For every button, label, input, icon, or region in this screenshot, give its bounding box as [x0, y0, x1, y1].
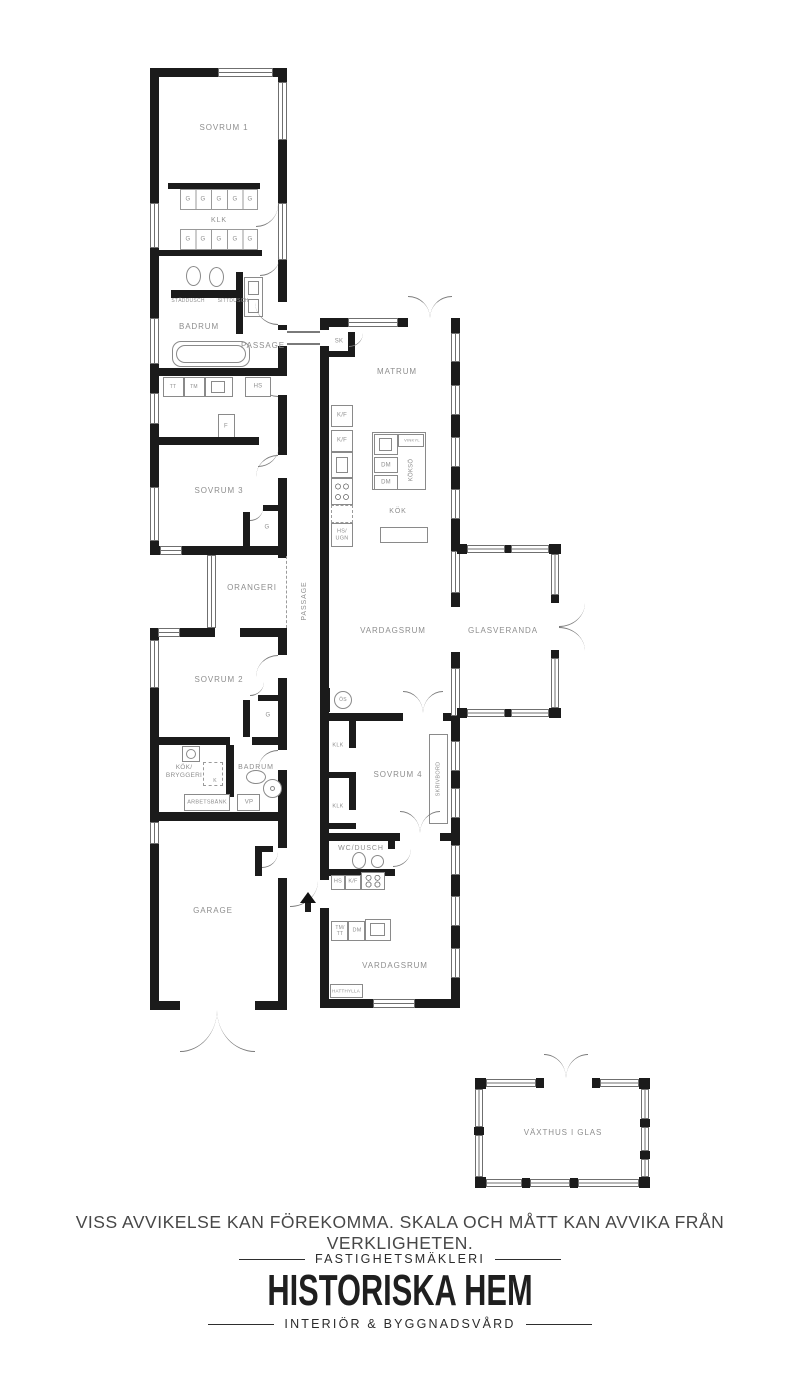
wall-segment: [451, 362, 460, 385]
window: [278, 203, 287, 260]
fixture-label-sittdusch: SITTDUSCH: [218, 298, 249, 304]
wardrobe-label-g: G: [233, 196, 238, 203]
wardrobe-label-g: G: [233, 236, 238, 243]
wall-segment: [278, 325, 287, 330]
wall-segment: [278, 260, 287, 302]
window: [451, 896, 460, 926]
door-arc: [250, 682, 264, 696]
door-arc: [423, 691, 443, 713]
toilet-icon: [352, 852, 366, 869]
window: [451, 788, 460, 818]
window: [511, 545, 549, 553]
door-arc: [255, 302, 278, 325]
greenhouse-door-arc: [566, 1054, 588, 1078]
fixture-label-kf-2: K/F: [337, 437, 347, 444]
wall-segment: [451, 818, 460, 845]
room-label-kok-bryggeri: KÖK/ BRYGGERI: [166, 764, 202, 780]
brand-tagline-bottom-text: INTERIÖR & BYGGNADSVÅRD: [284, 1317, 515, 1331]
post: [474, 1127, 484, 1135]
fixture-label-os: ÖS: [339, 697, 347, 703]
wall-segment: [329, 713, 403, 721]
wall-segment: [171, 290, 243, 298]
door-arc: [349, 333, 363, 347]
window: [348, 318, 398, 327]
wall-segment: [320, 318, 329, 330]
wall-segment: [451, 771, 460, 788]
window: [600, 1079, 639, 1087]
window: [451, 333, 460, 362]
fixture-label-kf-3: K/F: [348, 879, 357, 886]
post: [592, 1078, 600, 1088]
sink-bowl-icon: [379, 438, 392, 451]
window: [486, 1079, 536, 1087]
fixture-label-hs-ugn: HS/ UGN: [336, 528, 349, 541]
wall-segment: [443, 713, 451, 721]
door-arc: [256, 205, 278, 227]
wall-segment: [159, 368, 287, 376]
wall-segment: [451, 415, 460, 437]
post: [457, 544, 467, 554]
fixture-label-hs-2: HS: [334, 879, 342, 886]
window: [641, 1089, 649, 1119]
stove-burners-icon: [361, 872, 385, 890]
wall-segment: [329, 823, 356, 829]
fixture-label-arbetsbank: ARBETSBÄNK: [187, 800, 226, 807]
post: [551, 595, 559, 603]
room-label-klk: KLK: [211, 217, 227, 225]
brand-tagline-top-text: FASTIGHETSMÄKLERI: [315, 1252, 485, 1266]
wall-segment: [320, 346, 329, 545]
wall-segment: [451, 318, 460, 333]
stove-burners-icon: [331, 478, 353, 505]
floor-plan: SOVRUM 1GGGGGKLKGGGGGSTÄDDUSCHSITTDUSCHB…: [0, 0, 800, 1160]
wall-segment: [278, 395, 287, 455]
room-label-matrum: MATRUM: [377, 367, 417, 377]
fixture-label-vinkyl: VINKYL: [404, 439, 420, 444]
room-label-vardagsrum-1: VARDAGSRUM: [360, 626, 426, 636]
disclaimer-text: VISS AVVIKELSE KAN FÖREKOMMA. SKALA OCH …: [0, 1212, 800, 1254]
door-arc: [430, 296, 452, 318]
wall-segment: [258, 695, 287, 701]
window: [451, 437, 460, 467]
wall-segment: [150, 1001, 180, 1010]
window: [451, 385, 460, 415]
room-label-kok: KÖK: [389, 508, 406, 516]
window: [160, 546, 182, 555]
room-label-sovrum-4: SOVRUM 4: [374, 770, 423, 780]
fixture-label-tt: TT: [170, 384, 177, 390]
window: [451, 741, 460, 771]
window: [278, 82, 287, 140]
fixture-label-k: K: [213, 778, 217, 784]
room-label-badrum-1: BADRUM: [179, 322, 219, 332]
wall-segment: [150, 546, 160, 555]
fixture-label-kf-1: K/F: [337, 412, 347, 419]
room-label-passage-2: PASSAGE: [301, 581, 309, 620]
wall-segment: [280, 437, 287, 445]
window: [150, 318, 159, 364]
wall-segment: [451, 875, 460, 896]
wall-segment: [415, 999, 460, 1008]
wall-segment: [263, 505, 287, 511]
rule-line: [208, 1324, 274, 1325]
toilet-icon: [209, 267, 224, 287]
wall-segment: [329, 833, 400, 841]
fixture-label-klk-2: KLK: [332, 804, 343, 811]
fixture-label-hs-1: HS: [254, 383, 263, 390]
wall-segment: [150, 364, 159, 393]
door-arc: [420, 811, 440, 833]
door-arc: [260, 256, 280, 276]
hearth-wall: [322, 688, 330, 712]
room-label-sovrum-3: SOVRUM 3: [195, 486, 244, 496]
wall-segment: [159, 250, 262, 256]
fixture-label-f: F: [224, 423, 228, 430]
wall-segment: [150, 68, 159, 203]
fixture-label-hatthylla: HATTHYLLA: [332, 988, 360, 993]
entrance-arrow-stem: [305, 903, 311, 912]
veranda-door-arc: [559, 603, 585, 627]
window: [551, 554, 559, 595]
door-arc: [400, 811, 420, 833]
wall-segment: [150, 628, 158, 637]
fixture-label-dm-3: DM: [352, 928, 361, 935]
window: [451, 489, 460, 519]
post: [639, 1078, 650, 1089]
wall-segment: [226, 745, 234, 797]
window: [150, 203, 159, 248]
post: [536, 1078, 544, 1088]
wall-segment: [451, 716, 460, 741]
veranda-door-arc: [559, 627, 585, 651]
window: [551, 658, 559, 708]
window: [451, 845, 460, 875]
wall-segment: [255, 1001, 287, 1010]
sink-bowl-icon: [370, 923, 385, 936]
shower-drain-icon: [270, 786, 275, 791]
window: [511, 709, 549, 717]
door-arc: [408, 296, 430, 318]
wall-segment: [349, 721, 356, 748]
wall-segment: [150, 68, 218, 77]
wardrobe-label-g: G: [186, 236, 191, 243]
brand-tagline-top: FASTIGHETSMÄKLERI: [0, 1252, 800, 1266]
wall-segment: [278, 637, 287, 655]
wardrobe-label-g: G: [186, 196, 191, 203]
wall-segment: [240, 628, 287, 637]
bathtub-inner: [176, 345, 246, 363]
wall-segment: [320, 908, 329, 1008]
wall-segment: [451, 652, 460, 668]
sink-bowl-icon: [336, 457, 348, 473]
rule-line: [239, 1259, 305, 1260]
window: [150, 487, 159, 541]
room-label-sk: SK: [335, 338, 344, 345]
fixture-label-skrivbord: SKRIVBORD: [436, 762, 443, 797]
door-arc: [393, 849, 411, 867]
wall-segment: [150, 844, 159, 1010]
corridor-wall: [287, 343, 320, 345]
room-label-sovrum-2: SOVRUM 2: [195, 675, 244, 685]
window: [150, 393, 159, 424]
wall-segment: [320, 999, 373, 1008]
wall-segment: [243, 512, 250, 546]
sink-bowl-icon: [186, 749, 196, 759]
toilet-icon: [186, 266, 201, 286]
window: [150, 640, 159, 688]
wall-segment: [150, 688, 159, 822]
room-label-glasveranda: GLASVERANDA: [468, 626, 538, 636]
wall-segment: [278, 68, 287, 82]
wall-segment: [150, 737, 230, 745]
wardrobe-label-g-sovrum3: G: [265, 524, 270, 531]
wall-segment: [388, 841, 395, 849]
wall-segment: [451, 593, 460, 607]
window: [218, 68, 273, 77]
fixture-label-dm-1: DM: [381, 462, 391, 469]
wall-segment: [440, 833, 451, 841]
window: [475, 1089, 483, 1127]
wall-segment: [159, 437, 259, 445]
fixture-label-vp: VP: [245, 799, 254, 806]
wall-segment: [349, 778, 356, 810]
window: [467, 545, 505, 553]
window: [158, 628, 180, 637]
cabinet-dashed: [331, 505, 353, 523]
wardrobe-label-g: G: [217, 236, 222, 243]
window: [373, 999, 415, 1008]
sink-bowl-icon: [248, 281, 259, 295]
corridor-wall: [287, 331, 320, 333]
post: [549, 544, 561, 554]
fixture-label-dm-2: DM: [381, 479, 391, 486]
window: [207, 555, 216, 628]
wardrobe-label-g: G: [248, 236, 253, 243]
kitchen-bench: [380, 527, 428, 543]
wall-segment: [278, 878, 287, 1010]
sink-bowl-icon: [371, 855, 384, 868]
sink-bowl-icon: [211, 381, 225, 393]
wall-segment: [182, 546, 287, 555]
floorplan-page: SOVRUM 1GGGGGKLKGGGGGSTÄDDUSCHSITTDUSCHB…: [0, 0, 800, 1393]
wall-segment: [243, 700, 250, 737]
room-label-sovrum-1: SOVRUM 1: [200, 123, 249, 133]
wall-segment: [278, 140, 287, 203]
fixture-label-kokso: KÖKSÖ: [408, 459, 415, 482]
wall-segment: [180, 628, 215, 637]
room-label-passage-1: PASSAGE: [241, 341, 285, 351]
door-arc: [250, 508, 263, 521]
wardrobe-label-g: G: [217, 196, 222, 203]
window: [451, 551, 460, 593]
brand-name: HISTORISKA HEM: [120, 1268, 680, 1314]
door-arc: [256, 655, 278, 677]
post: [457, 708, 467, 718]
post: [549, 708, 561, 718]
wall-segment: [320, 721, 329, 833]
rule-line: [495, 1259, 561, 1260]
window: [451, 948, 460, 978]
greenhouse-door-arc: [544, 1054, 566, 1078]
post: [475, 1078, 486, 1089]
brand-logo: FASTIGHETSMÄKLERI HISTORISKA HEM INTERIÖ…: [0, 1252, 800, 1331]
room-label-badrum-2: BADRUM: [238, 764, 274, 772]
room-label-orangeri: ORANGERI: [227, 583, 277, 593]
wall-segment: [150, 812, 287, 821]
fixture-label-klk-1: KLK: [332, 743, 343, 750]
wall-segment: [329, 351, 355, 357]
wardrobe-label-g: G: [201, 196, 206, 203]
wall-segment: [252, 737, 287, 745]
wall-segment: [150, 424, 159, 487]
wall-segment: [320, 833, 329, 880]
wall-segment: [150, 248, 159, 318]
fixture-label-staddusch: STÄDDUSCH: [171, 298, 204, 304]
post: [551, 650, 559, 658]
window: [467, 709, 505, 717]
door-arc: [262, 852, 278, 868]
room-label-wc-dusch: WC/DUSCH: [338, 845, 384, 853]
window: [150, 822, 159, 844]
wardrobe-label-g: G: [201, 236, 206, 243]
room-label-vaxthus: VÄXTHUS I GLAS: [524, 1128, 602, 1138]
entrance-arrow-icon: [300, 892, 316, 903]
rule-line: [526, 1324, 592, 1325]
post: [640, 1151, 650, 1159]
wardrobe-label-g: G: [248, 196, 253, 203]
wall-segment: [451, 926, 460, 948]
door-arc: [403, 691, 423, 713]
wardrobe-label-g-sovrum2: G: [266, 712, 271, 719]
fixture-label-tm: TM: [190, 384, 198, 390]
open-boundary-dashed: [286, 556, 288, 628]
wall-segment: [398, 318, 408, 327]
footer: VISS AVVIKELSE KAN FÖREKOMMA. SKALA OCH …: [0, 1160, 800, 1393]
garage-door-arc: [217, 1010, 255, 1052]
post: [640, 1119, 650, 1127]
garage-door-arc: [180, 1010, 217, 1052]
room-label-vardagsrum-2: VARDAGSRUM: [362, 961, 428, 971]
brand-tagline-bottom: INTERIÖR & BYGGNADSVÅRD: [0, 1317, 800, 1331]
fixture-label-tm-tt: TM/ TT: [335, 925, 344, 937]
wall-segment: [451, 467, 460, 489]
room-label-garage: GARAGE: [193, 906, 233, 916]
window: [641, 1127, 649, 1151]
